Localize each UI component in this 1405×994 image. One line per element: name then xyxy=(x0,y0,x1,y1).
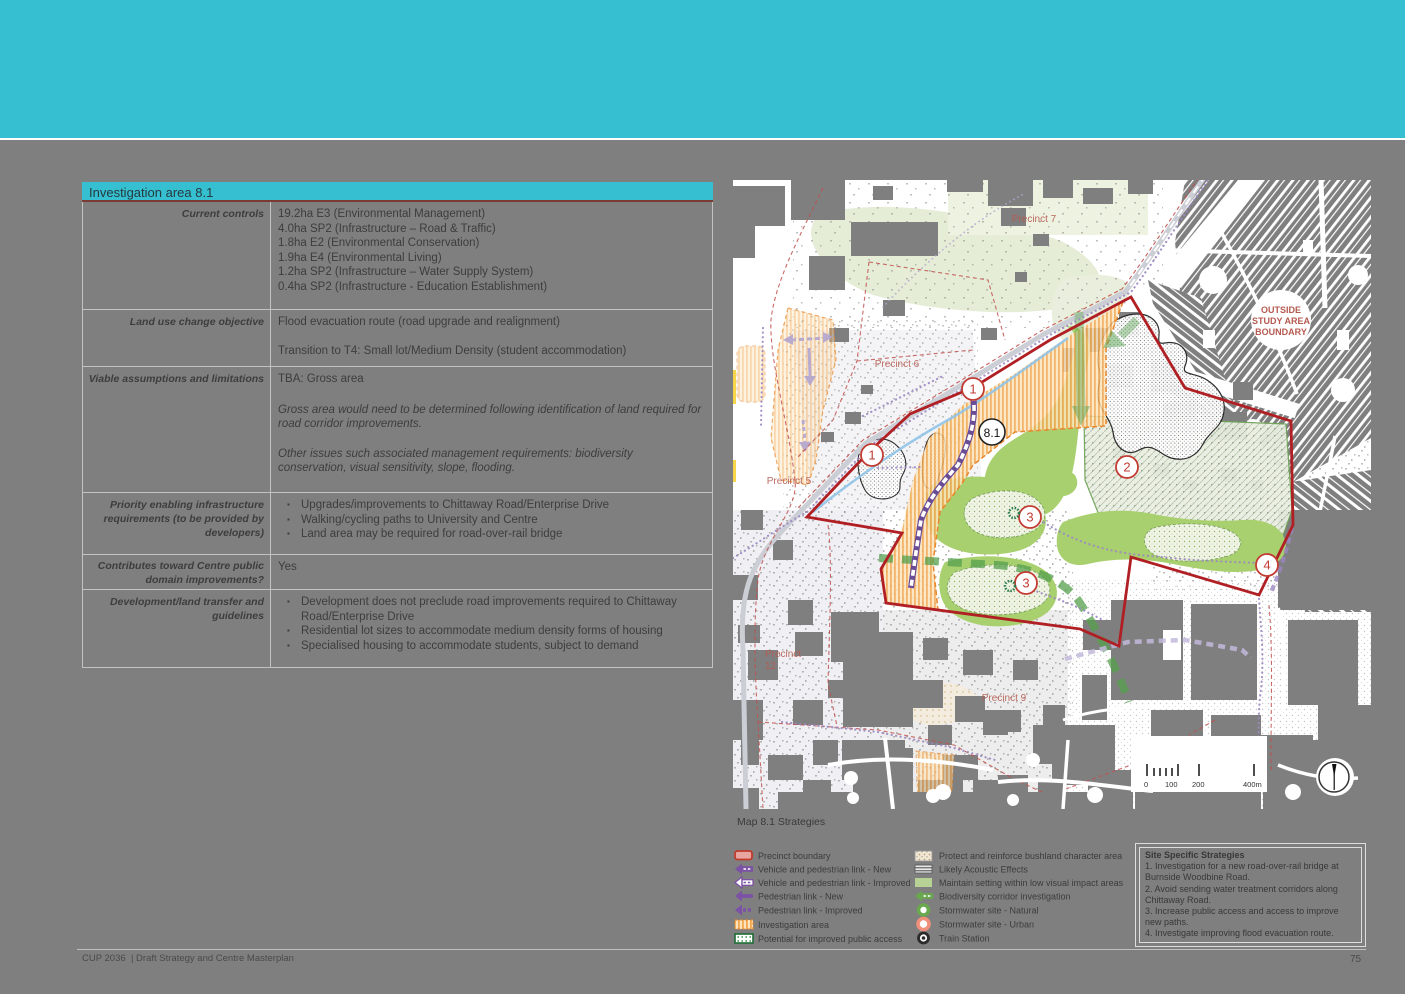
svg-text:3: 3 xyxy=(1022,576,1029,591)
svg-text:Precinct 9: Precinct 9 xyxy=(982,693,1027,704)
svg-text:12: 12 xyxy=(765,661,777,672)
svg-text:BOUNDARY: BOUNDARY xyxy=(1255,327,1307,337)
svg-text:Pedestrian link - Improved: Pedestrian link - Improved xyxy=(758,906,863,916)
svg-text:200: 200 xyxy=(1192,780,1205,789)
svg-text:Likely Acoustic Effects: Likely Acoustic Effects xyxy=(939,865,1028,875)
svg-text:Stormwater site - Natural: Stormwater site - Natural xyxy=(939,906,1039,916)
svg-text:Precinct: Precinct xyxy=(765,649,801,660)
svg-text:1: 1 xyxy=(868,448,875,463)
svg-text:2: 2 xyxy=(1123,460,1130,475)
svg-text:STUDY AREA: STUDY AREA xyxy=(1252,316,1311,326)
svg-text:Stormwater site - Urban: Stormwater site - Urban xyxy=(939,920,1034,930)
svg-text:400m: 400m xyxy=(1243,780,1262,789)
svg-text:3: 3 xyxy=(1026,510,1033,525)
svg-text:OUTSIDE: OUTSIDE xyxy=(1261,305,1301,315)
svg-text:Precinct 5: Precinct 5 xyxy=(767,476,812,487)
svg-text:Precinct boundary: Precinct boundary xyxy=(758,851,831,861)
svg-text:Pedestrian link - New: Pedestrian link - New xyxy=(758,892,844,902)
svg-text:4: 4 xyxy=(1263,558,1270,573)
svg-text:Vehicle and pedestrian link -: Vehicle and pedestrian link - Improved xyxy=(758,878,911,888)
svg-text:Maintain setting within low vi: Maintain setting within low visual impac… xyxy=(939,878,1124,888)
svg-text:8.1: 8.1 xyxy=(984,426,1001,440)
svg-text:Precinct 6: Precinct 6 xyxy=(875,359,920,370)
svg-text:0: 0 xyxy=(1144,780,1148,789)
svg-text:Precinct 7: Precinct 7 xyxy=(1012,214,1057,225)
svg-text:Vehicle and pedestrian link -: Vehicle and pedestrian link - New xyxy=(758,865,892,875)
svg-text:Protect and reinforce bushland: Protect and reinforce bushland character… xyxy=(939,851,1122,861)
svg-text:100: 100 xyxy=(1165,780,1178,789)
svg-text:Biodiversity corridor investig: Biodiversity corridor investigation xyxy=(939,892,1071,902)
svg-text:Investigation area: Investigation area xyxy=(758,920,829,930)
svg-text:1: 1 xyxy=(969,382,976,397)
svg-text:Potential for improved public: Potential for improved public access xyxy=(758,934,903,944)
svg-text:Train Station: Train Station xyxy=(939,934,990,944)
